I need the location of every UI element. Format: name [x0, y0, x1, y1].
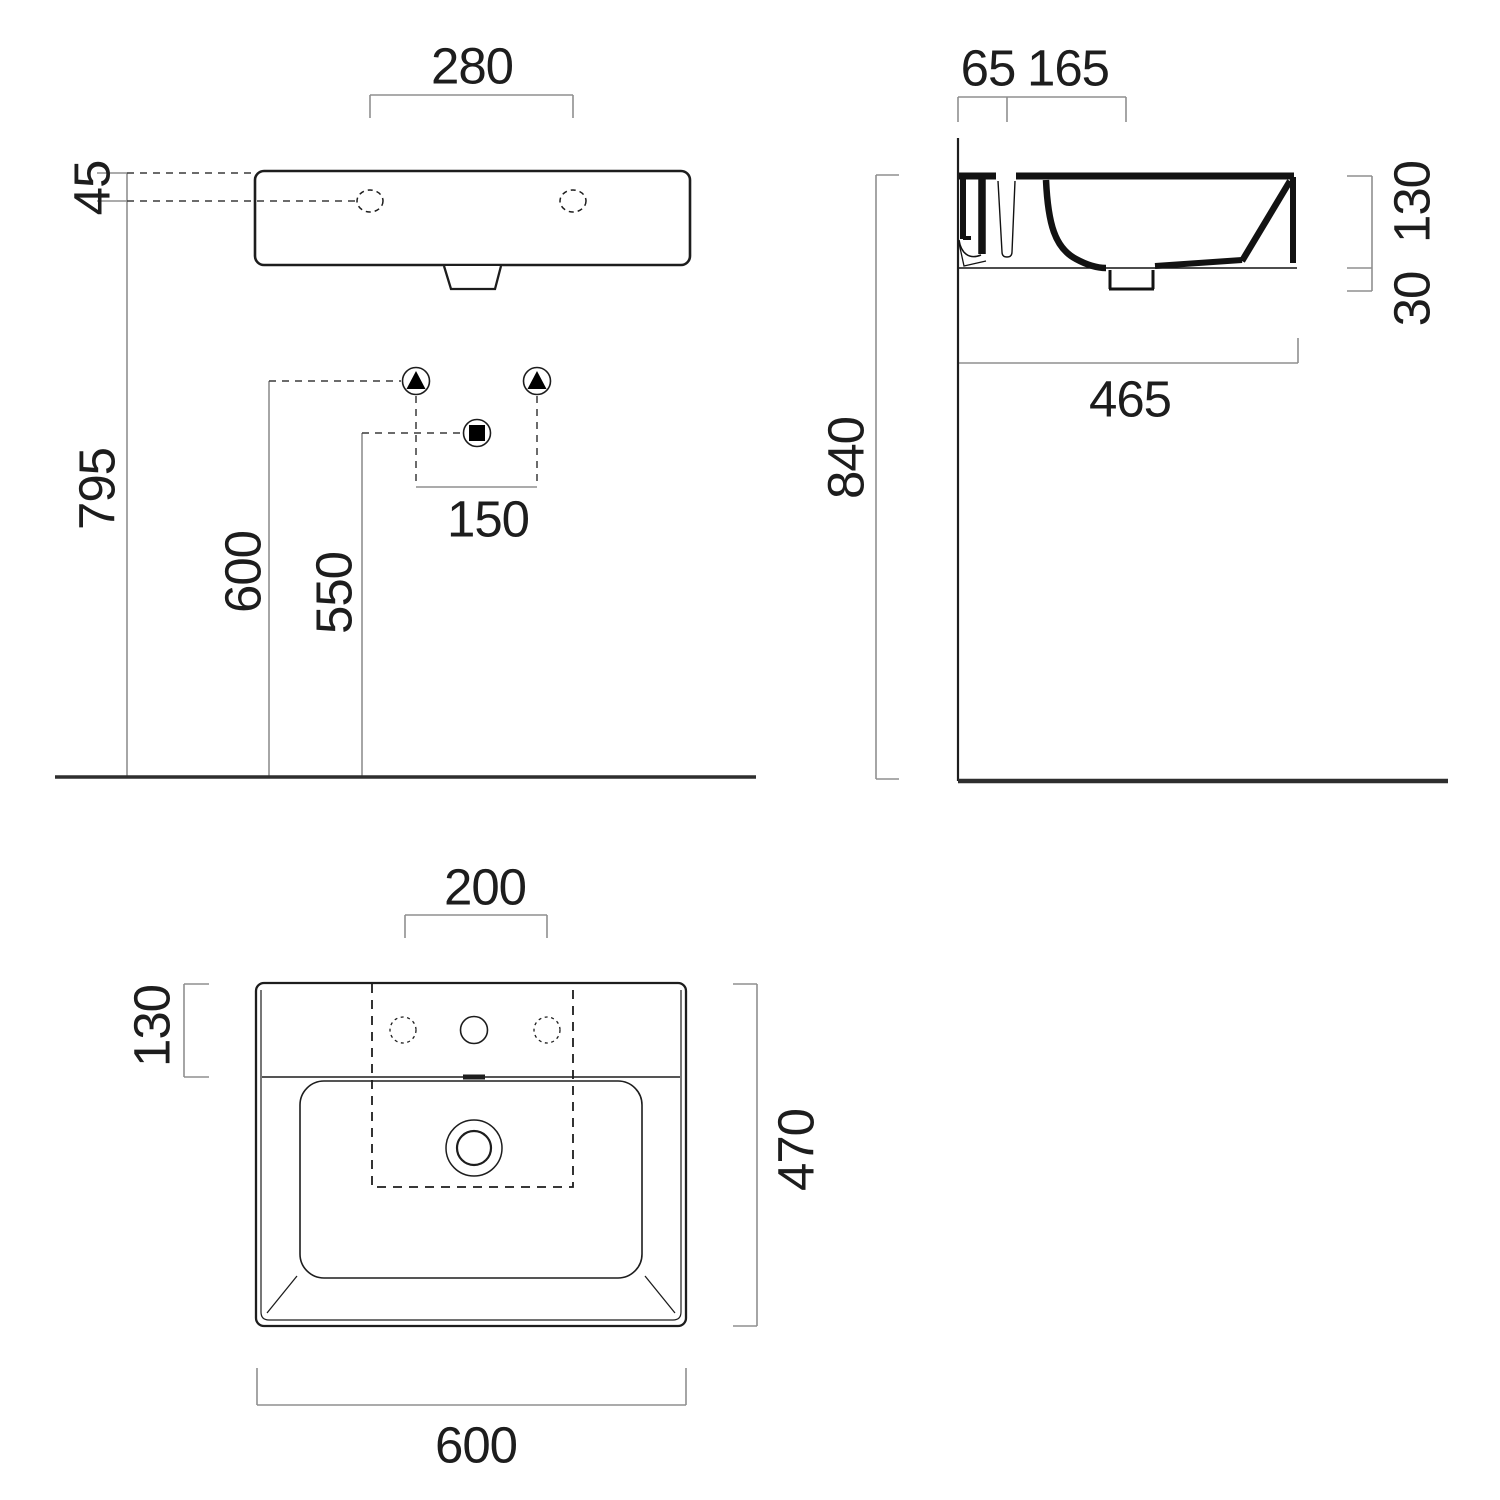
technical-drawing-canvas: 280 45 795 600 550 150 65 165 840 130 30… — [0, 0, 1500, 1500]
water-supply-symbol-right — [524, 368, 551, 395]
plan-basin-outline — [256, 983, 686, 1326]
tap-hole-option-left-icon — [390, 1017, 416, 1043]
front-dimension-lines — [97, 95, 573, 777]
basin-opening — [300, 1081, 642, 1278]
dim-label-600-plan: 600 — [435, 1420, 517, 1471]
basin-cross-section — [959, 176, 1297, 289]
waste-outlet-symbol — [464, 420, 491, 447]
side-view — [876, 97, 1448, 781]
tap-hole-option-right-icon — [534, 1017, 560, 1043]
plan-view — [184, 915, 757, 1405]
plan-dimension-lines — [184, 915, 757, 1405]
front-basin-outline — [255, 171, 690, 289]
faucet-hole-left-icon — [357, 190, 383, 212]
tap-zone-dashed-box — [372, 984, 573, 1187]
dim-label-45: 45 — [67, 161, 118, 216]
dim-label-200: 200 — [444, 862, 526, 913]
dim-label-795: 795 — [72, 448, 123, 530]
corner-chamfer-lines — [267, 1276, 675, 1313]
dim-label-30: 30 — [1387, 272, 1438, 327]
dim-label-280: 280 — [431, 41, 513, 92]
drain-outer-circle-icon — [446, 1120, 502, 1176]
tap-hole-center-icon — [461, 1017, 488, 1044]
dim-label-150: 150 — [447, 494, 529, 545]
water-supply-symbol-left — [403, 368, 430, 395]
dim-label-550: 550 — [309, 552, 360, 634]
dim-label-840: 840 — [821, 417, 872, 499]
dim-label-165: 165 — [1027, 43, 1109, 94]
side-dimension-lines — [876, 97, 1372, 779]
drain-inner-circle-icon — [457, 1131, 491, 1165]
dim-label-600-front: 600 — [218, 531, 269, 613]
dim-label-130-plan: 130 — [127, 985, 178, 1067]
dim-label-470: 470 — [771, 1109, 822, 1191]
dim-label-465: 465 — [1089, 374, 1171, 425]
front-drain-tab — [444, 266, 501, 289]
dim-label-130-side: 130 — [1387, 161, 1438, 243]
drawing-linework — [0, 0, 1500, 1500]
plan-holes — [390, 1017, 560, 1177]
dim-label-65: 65 — [961, 43, 1016, 94]
faucet-hole-right-icon — [560, 190, 586, 212]
front-view — [55, 95, 756, 777]
